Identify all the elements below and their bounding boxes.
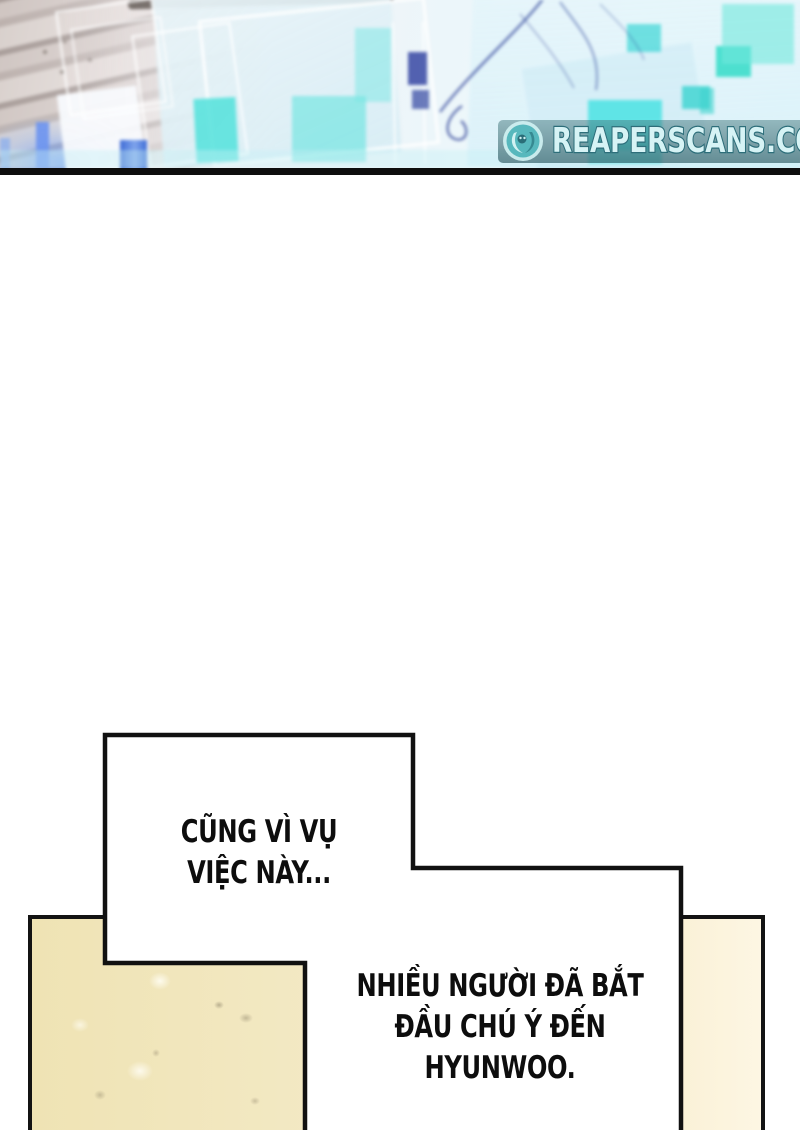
speech-bubble-1-text: CŨNG VÌ VỤ VIỆC NÀY... [137, 812, 380, 894]
speech-bubble-line: NHIỀU NGƯỜI ĐÃ BẮT [352, 966, 648, 1007]
speech-bubble-line: HYUNWOO. [352, 1048, 648, 1089]
comic-page: REAPERSCANS.COM CŨNG VÌ VỤ VIỆC NÀY... N… [0, 0, 800, 1130]
speech-bubbles-outline [0, 0, 800, 1130]
speech-bubble-2-text: NHIỀU NGƯỜI ĐÃ BẮT ĐẦU CHÚ Ý ĐẾN HYUNWOO… [352, 966, 648, 1089]
speech-bubble-line: CŨNG VÌ VỤ [137, 812, 380, 853]
speech-bubble-line: VIỆC NÀY... [137, 853, 380, 894]
speech-bubble-line: ĐẦU CHÚ Ý ĐẾN [352, 1007, 648, 1048]
